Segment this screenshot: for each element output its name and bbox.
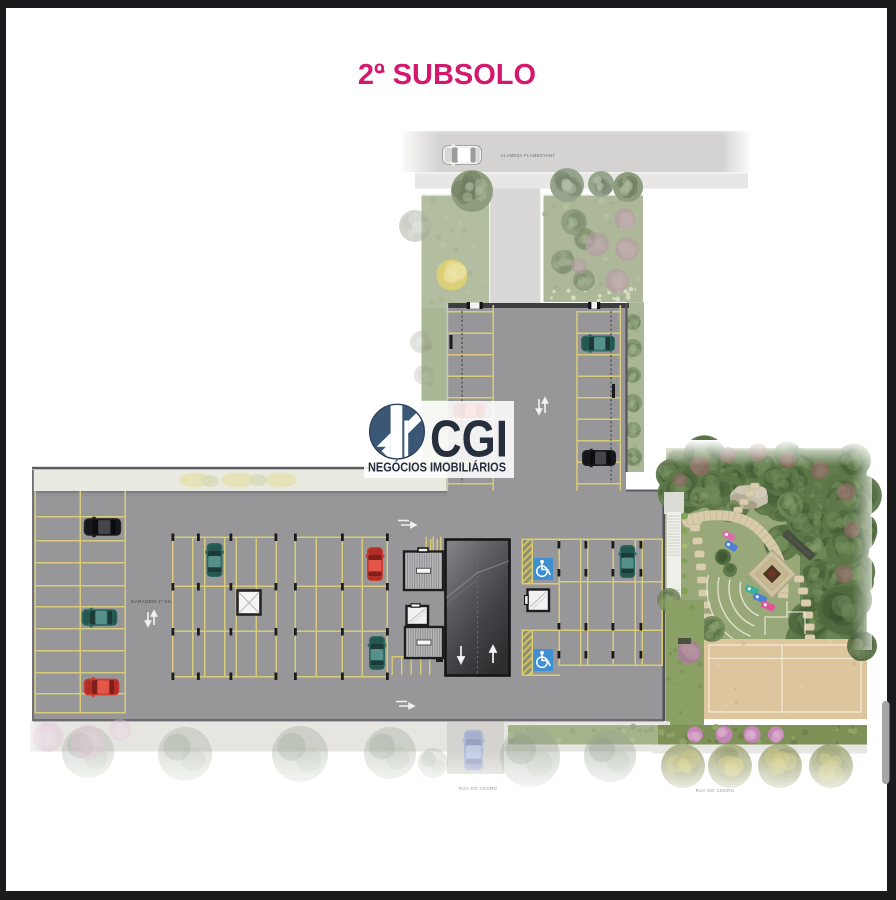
svg-text:RUA DO CEDRO: RUA DO CEDRO: [459, 786, 498, 791]
svg-text:GARAGEM 2º SS: GARAGEM 2º SS: [131, 599, 171, 604]
svg-text:ALAMEDA FLAMBOYANT: ALAMEDA FLAMBOYANT: [501, 153, 556, 158]
svg-text:RUA DO CEDRO: RUA DO CEDRO: [696, 788, 735, 793]
svg-text:NEGÓCIOS IMOBILIÁRIOS: NEGÓCIOS IMOBILIÁRIOS: [368, 460, 506, 475]
svg-text:2º SUBSOLO: 2º SUBSOLO: [358, 59, 536, 91]
